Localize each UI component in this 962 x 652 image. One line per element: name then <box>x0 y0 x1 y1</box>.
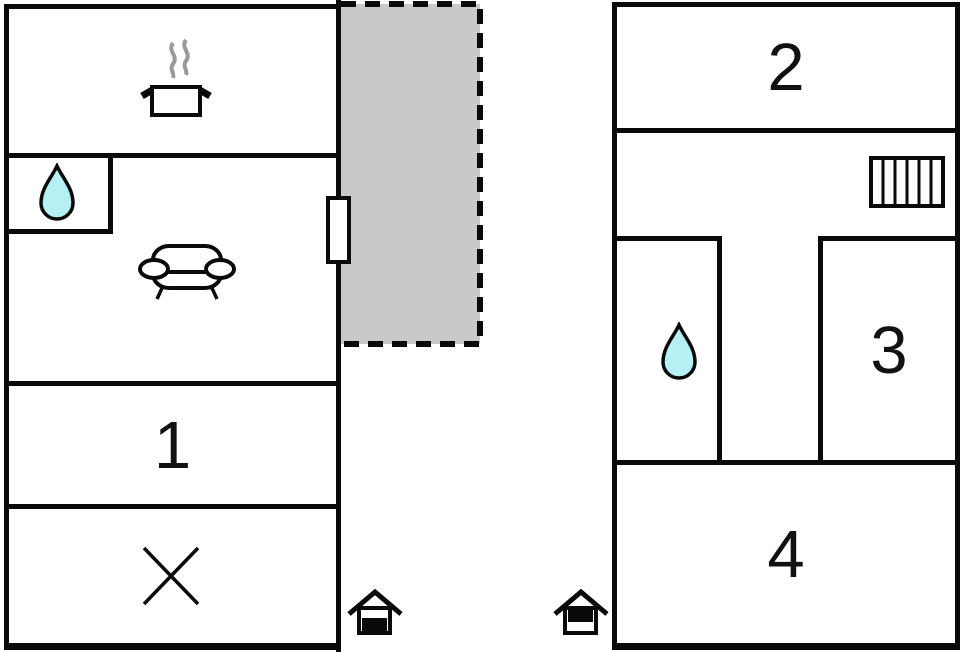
wall-hall-left-segment <box>612 236 722 241</box>
wall-bathroom-bottom <box>4 229 113 234</box>
water-drop-shape <box>41 166 73 219</box>
room-3-label: 3 <box>823 241 955 460</box>
sofa-icon <box>136 241 236 303</box>
wall-bathroom-right <box>108 153 113 234</box>
wall-room2-bottom <box>612 128 960 133</box>
wall-living-bottom <box>4 381 341 386</box>
wall-right-outer-west <box>612 2 617 650</box>
wall-left-outer-west <box>4 4 9 650</box>
wall-left-outer-east <box>336 0 341 652</box>
wall-corridor-right <box>818 236 823 465</box>
house-filled-upper-half <box>568 610 593 622</box>
wall-left-outer-south <box>4 643 341 650</box>
room-2-label: 2 <box>617 7 955 128</box>
water-drop-icon <box>659 322 699 384</box>
wall-room4-top <box>612 460 960 465</box>
sofa-armrest <box>206 260 234 278</box>
terrace-area <box>336 0 492 356</box>
floor-plan-canvas: 1 2 3 4 <box>0 0 962 652</box>
door <box>326 196 351 264</box>
wall-corridor-left <box>717 236 722 465</box>
wall-right-outer-north <box>612 2 960 7</box>
steam-line <box>184 40 187 75</box>
room-1-label: 1 <box>4 386 341 504</box>
cooking-pot-icon <box>136 38 216 118</box>
wall-right-outer-south <box>612 643 960 650</box>
wall-hall-right-segment <box>818 236 960 241</box>
sofa-armrest <box>140 260 168 278</box>
wall-right-outer-east <box>955 2 960 650</box>
wall-kitchen-bottom <box>4 153 341 158</box>
house-ground-floor-icon <box>347 587 403 635</box>
wall-left-outer-north <box>4 4 341 9</box>
water-drop-icon <box>37 163 77 225</box>
steam-line <box>171 43 174 78</box>
radiator-icon <box>867 154 947 210</box>
room-4-label: 4 <box>617 465 955 643</box>
wall-room1-bottom <box>4 504 341 509</box>
house-upper-floor-icon <box>553 587 609 635</box>
cross-icon <box>141 545 201 607</box>
water-drop-shape <box>663 325 695 378</box>
pot-body <box>152 87 200 115</box>
terrace-fill <box>341 4 480 344</box>
house-filled-lower-half <box>362 618 387 631</box>
